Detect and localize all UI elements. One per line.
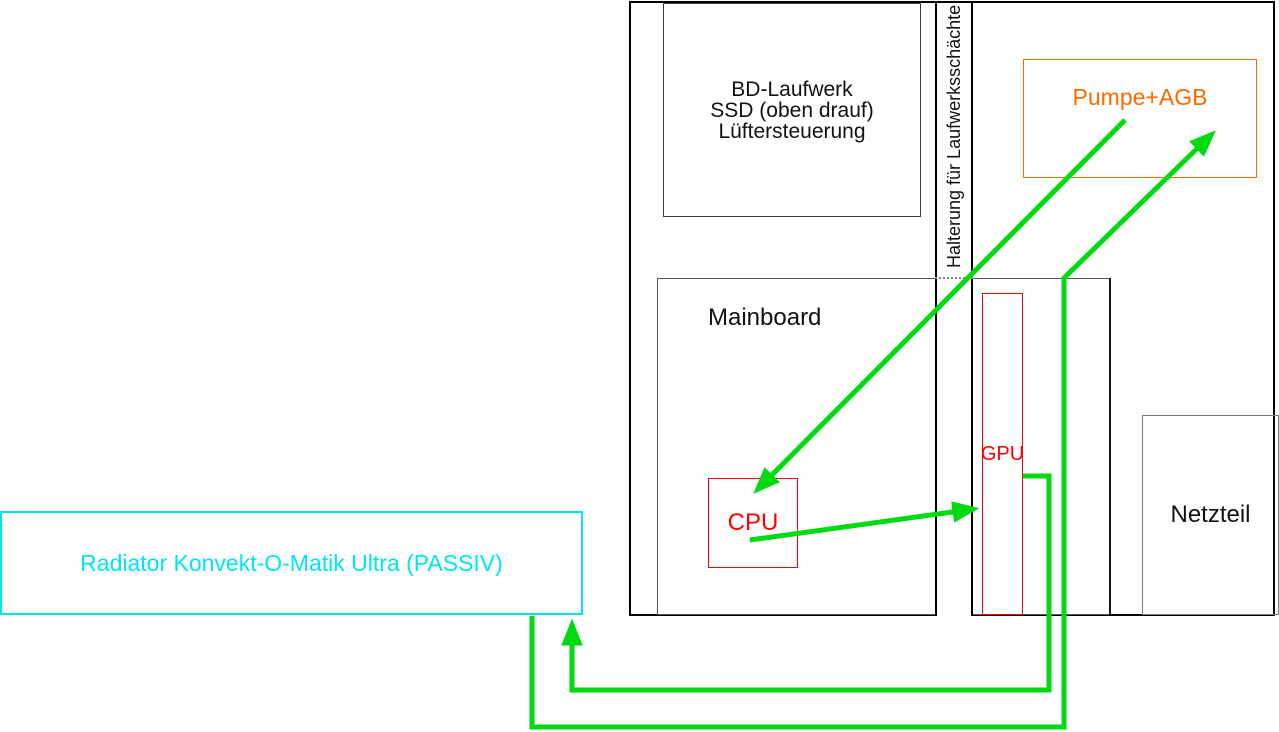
radiator-box: Radiator Konvekt-O-Matik Ultra (PASSIV) xyxy=(0,511,583,615)
drive-mount-label: Halterung für Laufwerksschächte xyxy=(942,6,966,268)
gpu-label: GPU xyxy=(981,443,1024,466)
cpu-label: CPU xyxy=(728,509,779,537)
watercooling-diagram: Mainboard Netzteil Halterung für Laufwer… xyxy=(0,0,1279,732)
mainboard-right-edge xyxy=(1109,278,1111,615)
dotted-separator xyxy=(935,277,973,279)
pump-agb-box: Pumpe+AGB xyxy=(1023,59,1257,178)
pump-agb-label: Pumpe+AGB xyxy=(1073,84,1208,111)
drive-bay-line-3: Lüftersteuerung xyxy=(718,121,865,142)
gpu-box: GPU xyxy=(982,293,1023,615)
drive-bay-line-1: BD-Laufwerk xyxy=(731,79,852,100)
psu-box: Netzteil xyxy=(1142,415,1279,615)
drive-bay-line-2: SSD (oben drauf) xyxy=(710,100,873,121)
radiator-label: Radiator Konvekt-O-Matik Ultra (PASSIV) xyxy=(80,550,503,577)
mainboard-label: Mainboard xyxy=(708,304,821,332)
psu-label: Netzteil xyxy=(1170,501,1250,529)
drive-bay-box: BD-Laufwerk SSD (oben drauf) Lüftersteue… xyxy=(663,3,921,217)
cpu-box: CPU xyxy=(708,478,798,568)
